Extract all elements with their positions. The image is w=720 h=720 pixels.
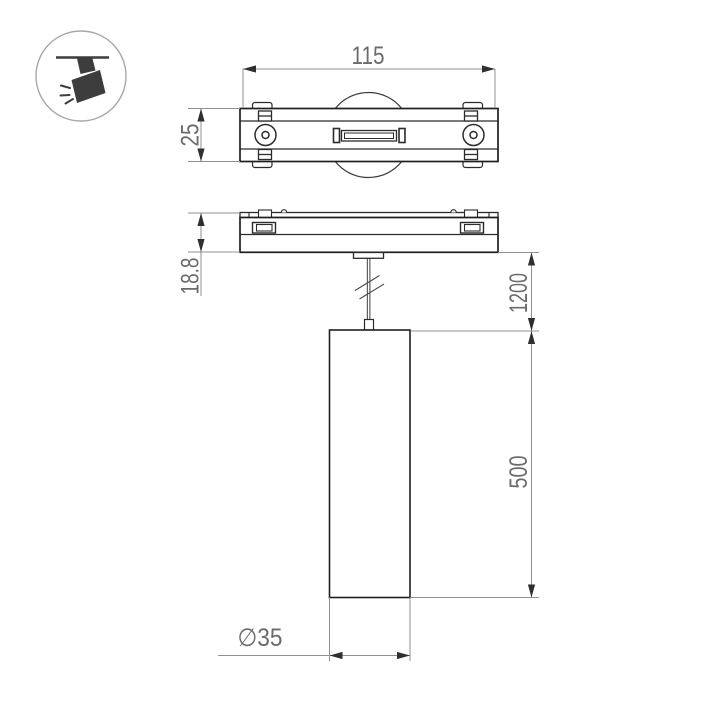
dim-label-18.8: 18.8	[177, 258, 205, 295]
top-view	[240, 93, 498, 178]
dimension-lamp-height: 500	[411, 331, 539, 598]
side-view	[240, 210, 498, 598]
contact-window	[334, 129, 406, 143]
dimension-lamp-diameter: ∅35	[218, 598, 410, 662]
dim-label-115: 115	[352, 42, 385, 70]
arrow-up	[197, 213, 204, 226]
drawing-canvas: 115 25 18.8 1200 500	[0, 0, 720, 720]
arrow-down	[528, 318, 535, 331]
track-spotlight-icon	[36, 31, 126, 121]
arrow-up	[528, 253, 535, 266]
contact-bump	[451, 210, 457, 213]
contact-bump	[281, 210, 287, 213]
dim-label-1200: 1200	[505, 273, 533, 313]
cable-gland	[354, 252, 384, 258]
arrow-right	[482, 65, 495, 72]
dimension-drawing: 115 25 18.8 1200 500	[0, 0, 720, 720]
dim-label-25: 25	[177, 124, 205, 147]
arrow-down	[197, 149, 204, 162]
dim-label-diameter: ∅35	[238, 624, 283, 652]
dimension-track-width: 25	[177, 109, 241, 162]
arrow-down	[528, 585, 535, 598]
arrow-up	[197, 109, 204, 122]
arrow-down	[197, 239, 204, 252]
icon-circle	[36, 31, 126, 121]
arrow-left	[330, 652, 343, 659]
arrow-right	[397, 652, 410, 659]
pendant-cylinder	[330, 330, 411, 598]
cable-fitting	[365, 320, 374, 331]
suspension-cable	[367, 258, 370, 319]
dim-label-500: 500	[505, 456, 533, 489]
dimension-suspension-length: 1200	[411, 253, 539, 332]
dimension-base-height: 18.8	[177, 213, 241, 296]
arrow-up	[528, 331, 535, 344]
arrow-left	[243, 65, 256, 72]
dimension-track-length: 115	[243, 42, 495, 108]
